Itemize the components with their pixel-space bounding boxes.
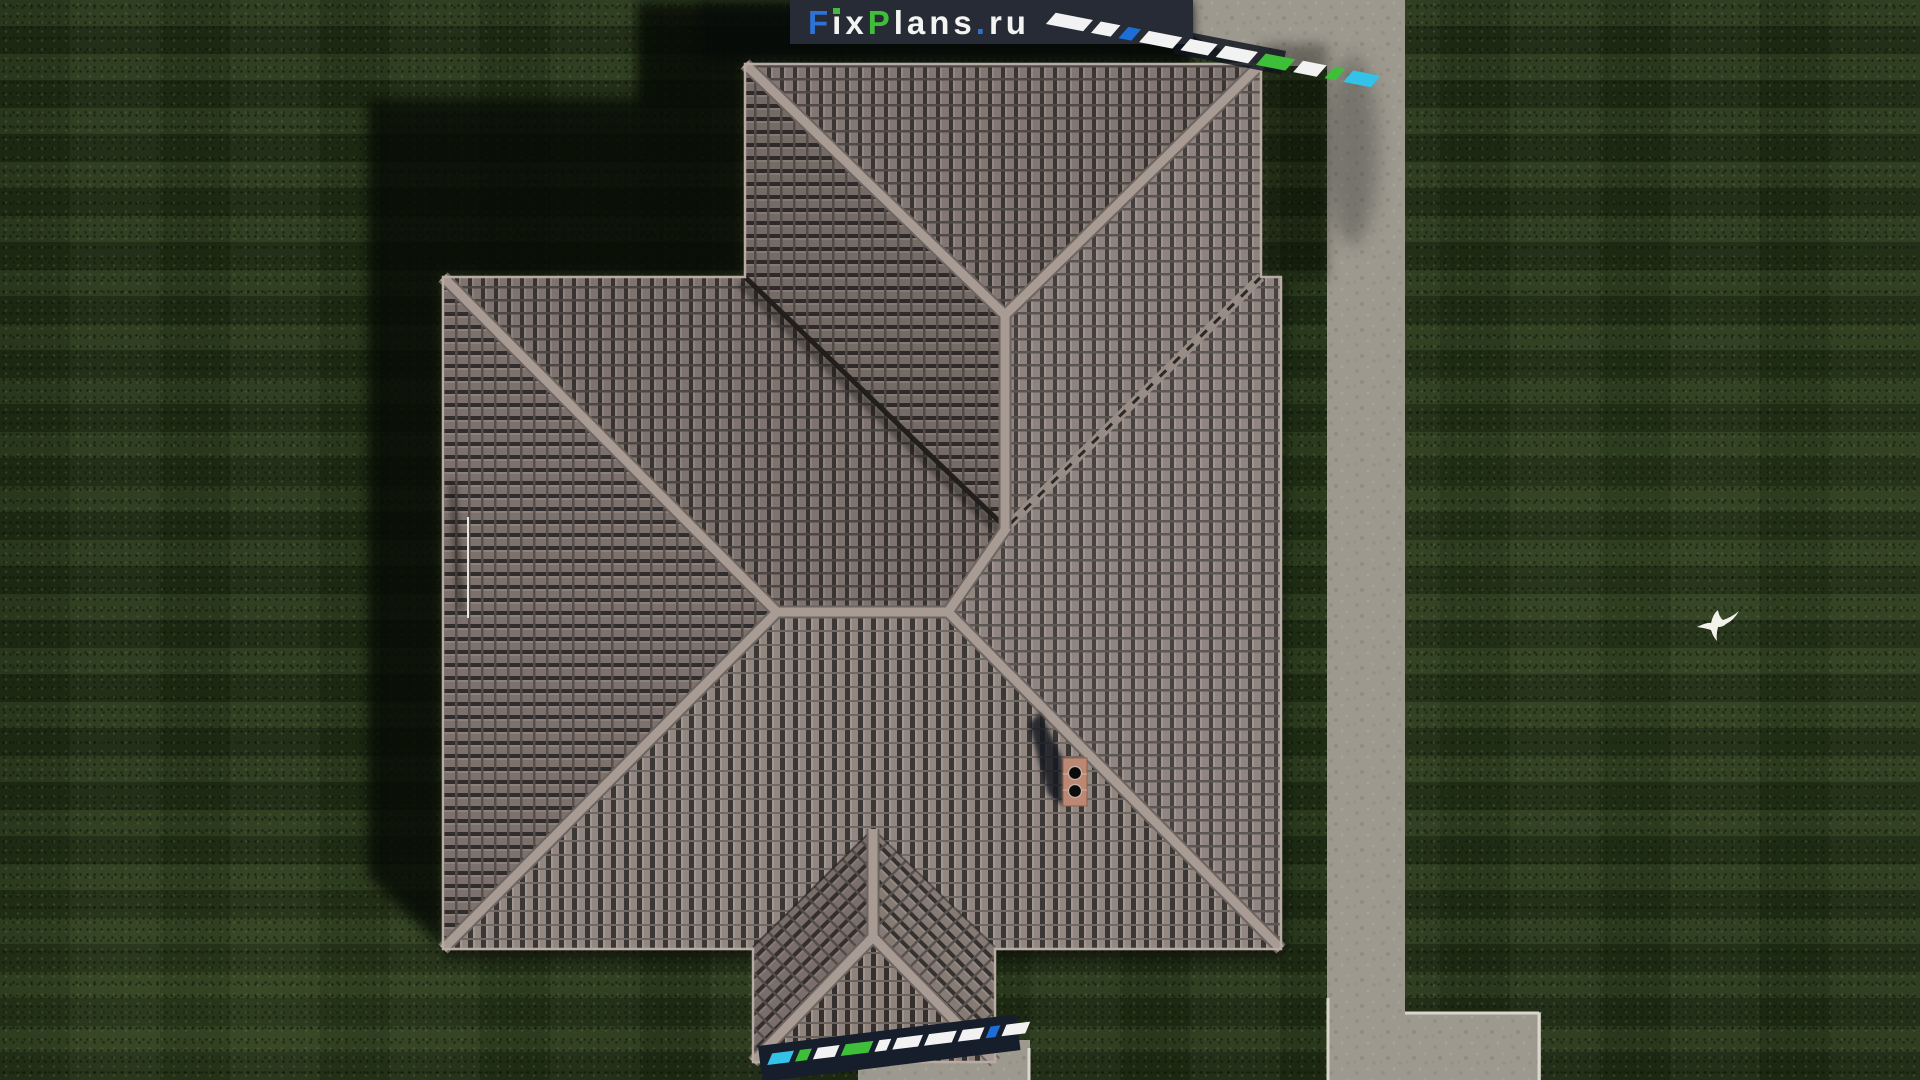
brand-i-dot xyxy=(833,8,840,14)
chimney-flue-bottom xyxy=(1069,785,1082,798)
watermark-segment xyxy=(795,1048,812,1061)
watermark-segment xyxy=(874,1039,891,1052)
bird-icon xyxy=(1697,610,1739,641)
brand-letter-p: P xyxy=(868,4,894,41)
watermark-segment xyxy=(986,1025,1001,1038)
brand-letters-lans: lans xyxy=(894,4,976,41)
shadow-east-of-wing xyxy=(1261,44,1327,280)
chimney-body xyxy=(1063,758,1087,806)
watermark-segment xyxy=(1325,67,1346,80)
watermark-segment xyxy=(1118,27,1141,41)
scene-svg xyxy=(0,0,1920,1080)
brand-logo: FixPlans.ru xyxy=(808,0,1030,44)
walkway-pad xyxy=(1327,1012,1541,1080)
brand-dot: . xyxy=(976,4,989,41)
brand-letter-f: F xyxy=(808,4,832,41)
chimney-flue-top xyxy=(1069,767,1082,780)
brand-letters-ru: ru xyxy=(989,4,1030,41)
aerial-render: FixPlans.ru xyxy=(0,0,1920,1080)
